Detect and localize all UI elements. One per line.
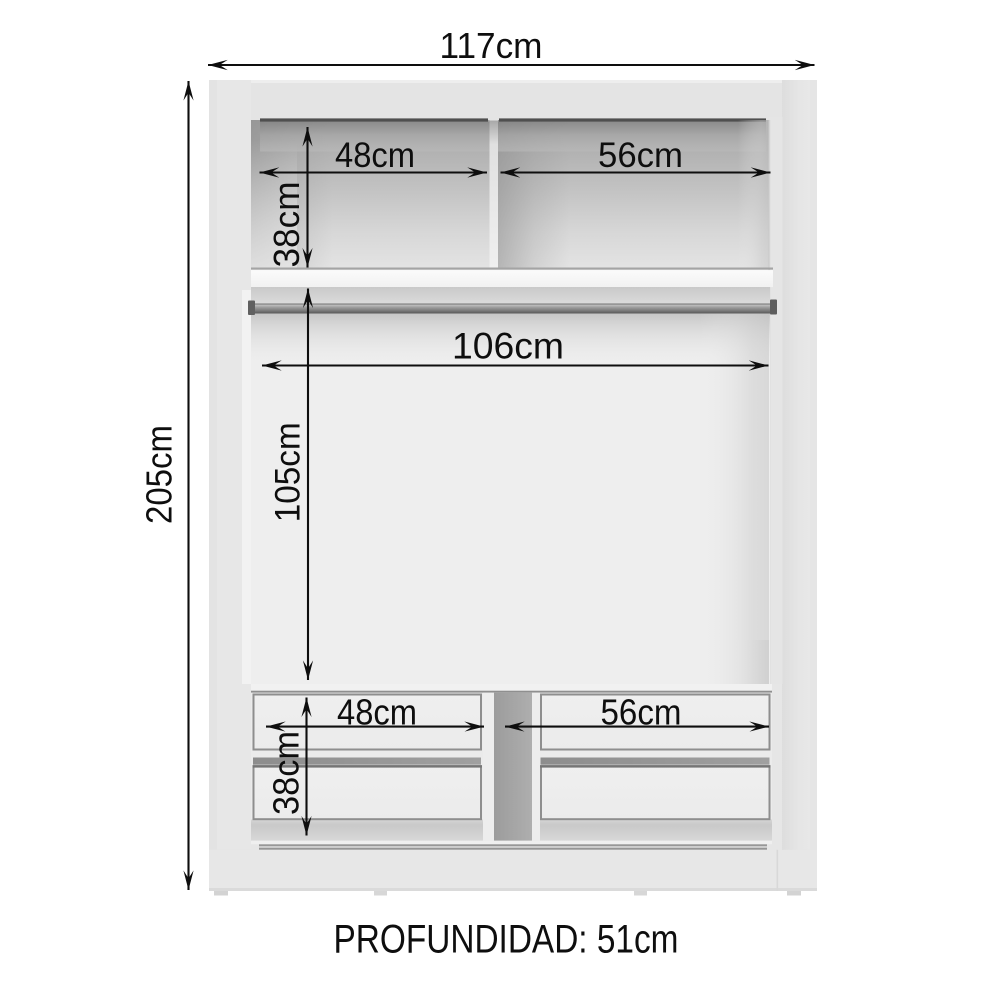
svg-text:117cm: 117cm — [440, 25, 543, 66]
svg-text:PROFUNDIDAD: 51cm: PROFUNDIDAD: 51cm — [334, 918, 679, 962]
svg-text:106cm: 106cm — [452, 326, 564, 367]
svg-text:38cm: 38cm — [266, 182, 307, 268]
svg-text:48cm: 48cm — [335, 136, 415, 175]
svg-text:38cm: 38cm — [266, 731, 307, 815]
svg-text:56cm: 56cm — [601, 692, 682, 733]
svg-text:205cm: 205cm — [139, 425, 180, 524]
svg-text:56cm: 56cm — [598, 136, 683, 175]
svg-text:105cm: 105cm — [268, 422, 307, 522]
svg-text:48cm: 48cm — [337, 692, 417, 733]
